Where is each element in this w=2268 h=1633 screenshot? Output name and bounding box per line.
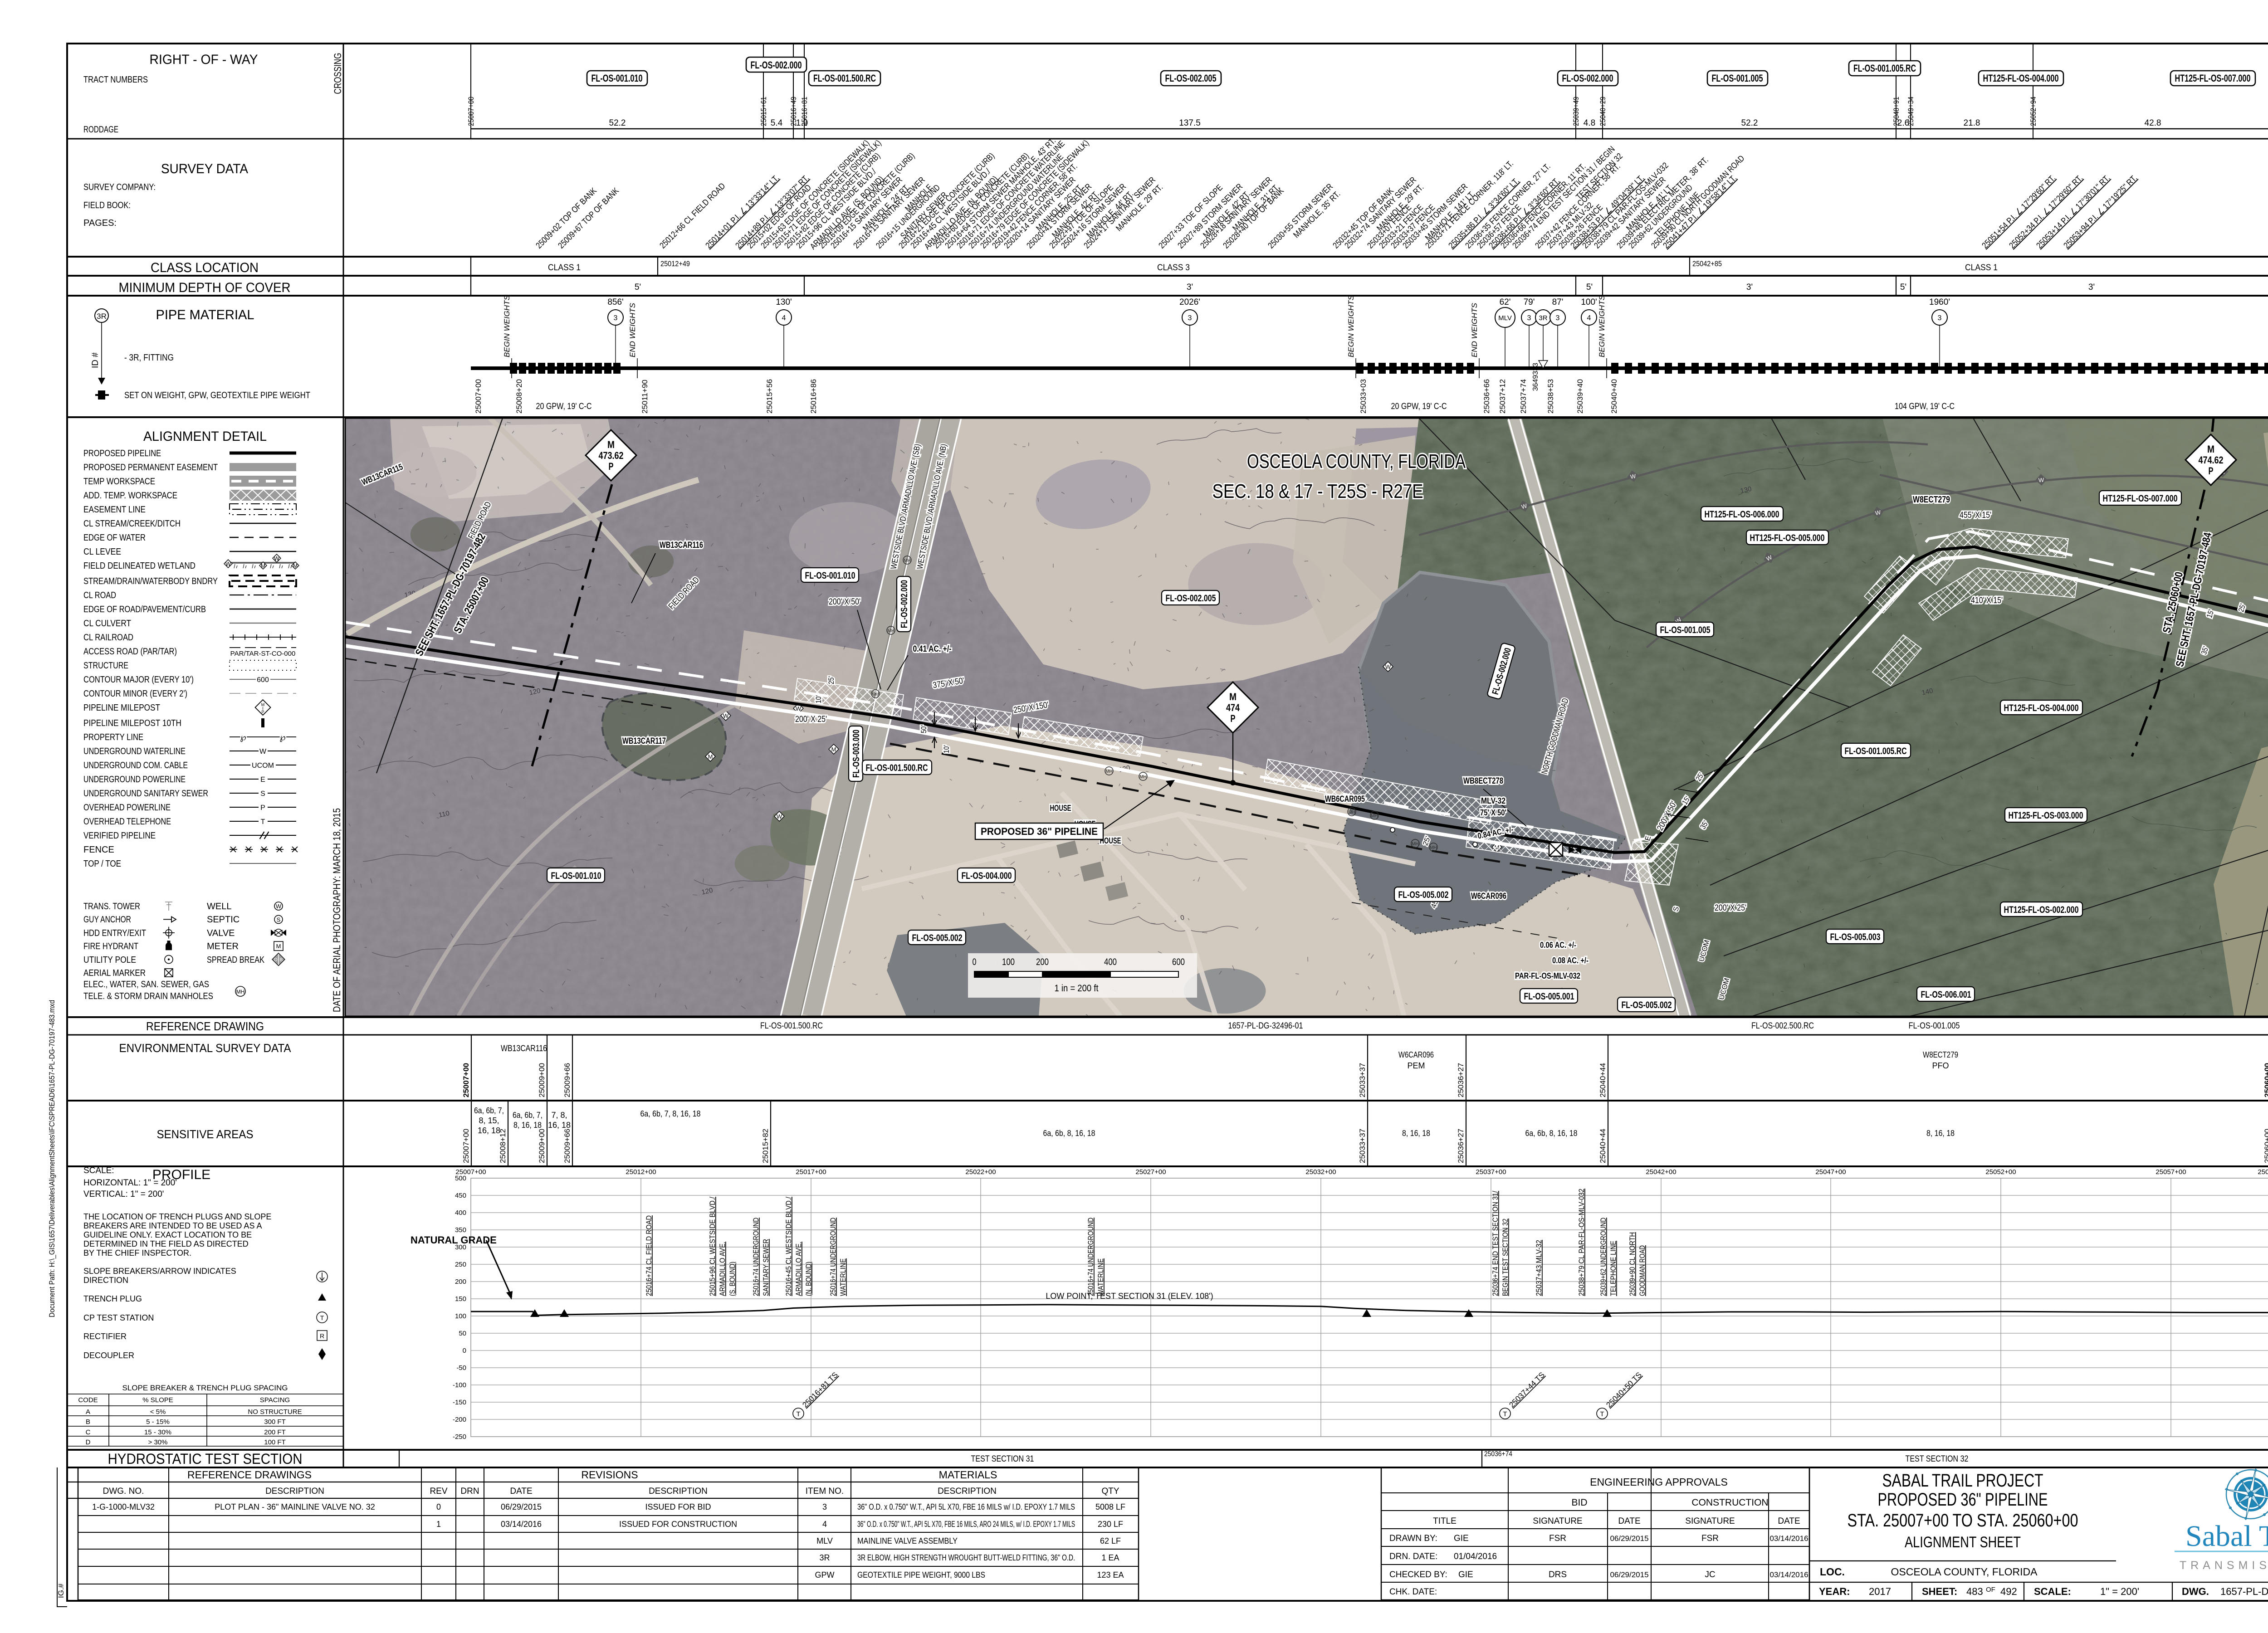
- svg-text:MH: MH: [1430, 845, 1437, 850]
- svg-text:ENGINEERING APPROVALS: ENGINEERING APPROVALS: [1590, 1476, 1728, 1488]
- svg-text:3R: 3R: [819, 1553, 830, 1562]
- svg-text:GOODMAN ROAD: GOODMAN ROAD: [1638, 1245, 1647, 1296]
- svg-text:WATERLINE: WATERLINE: [839, 1258, 847, 1296]
- svg-text:(N. BOUND): (N. BOUND): [804, 1262, 813, 1296]
- svg-text:1960': 1960': [1929, 297, 1950, 307]
- svg-text:1: 1: [436, 1520, 441, 1529]
- svg-text:T: T: [796, 1410, 800, 1418]
- svg-text:ENVIRONMENTAL SURVEY DATA: ENVIRONMENTAL SURVEY DATA: [119, 1041, 292, 1055]
- svg-text:STA. 25007+00 TO STA. 25060+00: STA. 25007+00 TO STA. 25060+00: [1848, 1511, 2078, 1531]
- svg-text:6a, 6b, 8, 16, 18: 6a, 6b, 8, 16, 18: [1525, 1129, 1578, 1138]
- svg-text:25038+53: 25038+53: [1546, 379, 1555, 414]
- svg-text:CL LEVEE: CL LEVEE: [83, 547, 121, 557]
- svg-text:FL-OS-002.005: FL-OS-002.005: [1165, 73, 1217, 84]
- svg-text:M: M: [607, 439, 615, 450]
- svg-text:FL-OS-001.010: FL-OS-001.010: [591, 73, 643, 84]
- svg-text:PIPELINE MILEPOST: PIPELINE MILEPOST: [83, 703, 160, 713]
- svg-text:M: M: [1229, 691, 1237, 702]
- svg-text:25052+94: 25052+94: [2029, 97, 2038, 126]
- svg-text:230 LF: 230 LF: [1098, 1520, 1123, 1529]
- svg-text:TELEPHONE LINE: TELEPHONE LINE: [1609, 1241, 1618, 1296]
- svg-text:PEM: PEM: [1407, 1061, 1425, 1070]
- svg-text:5 - 15%: 5 - 15%: [146, 1418, 170, 1426]
- svg-text:-100: -100: [453, 1381, 466, 1389]
- svg-text:SLOPE BREAKERS/ARROW INDICATES: SLOPE BREAKERS/ARROW INDICATES: [83, 1267, 236, 1276]
- svg-text:M: M: [261, 563, 265, 569]
- svg-text:EASEMENT LINE: EASEMENT LINE: [83, 505, 146, 515]
- svg-text:DRN: DRN: [460, 1487, 479, 1496]
- svg-text:25007+00: 25007+00: [462, 1129, 470, 1163]
- svg-text:A: A: [86, 1408, 90, 1416]
- svg-text:(S. BOUND): (S. BOUND): [728, 1262, 737, 1296]
- svg-text:20 GPW, 19' C-C: 20 GPW, 19' C-C: [536, 402, 592, 411]
- svg-text:2026': 2026': [1179, 297, 1200, 307]
- svg-text:DRN. DATE:: DRN. DATE:: [1389, 1552, 1437, 1561]
- svg-text:6a, 6b, 7,: 6a, 6b, 7,: [513, 1111, 543, 1120]
- svg-text:25036+74 END TEST SECTION 31/: 25036+74 END TEST SECTION 31/: [1491, 1191, 1500, 1296]
- svg-text:ISSUED FOR BID: ISSUED FOR BID: [645, 1502, 711, 1511]
- svg-text:CHECKED BY:: CHECKED BY:: [1389, 1570, 1447, 1579]
- svg-text:MH: MH: [236, 989, 245, 995]
- svg-text:-200: -200: [453, 1416, 466, 1423]
- svg-text:VALVE: VALVE: [207, 928, 235, 938]
- svg-text:2017: 2017: [1869, 1586, 1891, 1597]
- svg-text:MH: MH: [872, 692, 879, 697]
- svg-text:600: 600: [257, 676, 269, 684]
- svg-text:T: T: [1600, 1410, 1604, 1418]
- svg-text:1657-PL-DG-32496-01: 1657-PL-DG-32496-01: [1228, 1021, 1303, 1031]
- svg-text:0: 0: [463, 1347, 466, 1355]
- svg-text:GPW: GPW: [815, 1570, 835, 1579]
- svg-text:NO STRUCTURE: NO STRUCTURE: [248, 1408, 302, 1416]
- svg-text:6a, 6b, 7,: 6a, 6b, 7,: [474, 1106, 504, 1115]
- svg-text:R: R: [320, 1332, 324, 1340]
- svg-text:IG.#: IG.#: [57, 1583, 65, 1598]
- svg-text:25016+74 UNDERGROUND: 25016+74 UNDERGROUND: [1086, 1218, 1095, 1296]
- svg-text:DATE: DATE: [1618, 1516, 1640, 1526]
- svg-text:10': 10': [942, 745, 951, 753]
- svg-text:6a, 6b, 8, 16, 18: 6a, 6b, 8, 16, 18: [1043, 1129, 1095, 1138]
- svg-text:100 FT: 100 FT: [264, 1438, 286, 1446]
- svg-text:FL-OS-006.001: FL-OS-006.001: [1921, 990, 1971, 1000]
- svg-text:1.9: 1.9: [796, 118, 808, 128]
- svg-text:HT125-FL-OS-005.000: HT125-FL-OS-005.000: [1750, 533, 1825, 543]
- svg-text:OSCEOLA COUNTY, FLORIDA: OSCEOLA COUNTY, FLORIDA: [1247, 450, 1466, 473]
- svg-text:75' X 50': 75' X 50': [1480, 808, 1506, 817]
- svg-text:GUIDELINE ONLY. EXACT LOCATIO: GUIDELINE ONLY. EXACT LOCATION TO BE: [83, 1230, 252, 1239]
- svg-text:10': 10': [814, 695, 823, 703]
- svg-text:FL-OS-005.002: FL-OS-005.002: [1622, 1000, 1672, 1010]
- svg-text:PFO: PFO: [1932, 1061, 1949, 1070]
- svg-text:CLASS 1: CLASS 1: [548, 263, 581, 273]
- svg-text:HT125-FL-OS-004.000: HT125-FL-OS-004.000: [2004, 703, 2079, 713]
- svg-text:25015+82: 25015+82: [761, 1129, 770, 1163]
- svg-text:ARMADILLO AVE.: ARMADILLO AVE.: [794, 1242, 803, 1296]
- svg-text:25011+90: 25011+90: [640, 380, 649, 414]
- svg-text:03/14/2016: 03/14/2016: [501, 1520, 542, 1529]
- svg-text:25039+49: 25039+49: [1572, 97, 1580, 126]
- svg-text:TEST SECTION 32: TEST SECTION 32: [1906, 1454, 1969, 1464]
- svg-text:W: W: [1385, 663, 1391, 670]
- svg-text:200' X 50': 200' X 50': [829, 597, 860, 607]
- svg-text:DRS: DRS: [1549, 1570, 1567, 1579]
- svg-text:130': 130': [776, 297, 792, 307]
- svg-text:END WEIGHTS: END WEIGHTS: [1470, 302, 1479, 357]
- svg-text:0.06 AC. +/-: 0.06 AC. +/-: [1540, 941, 1576, 950]
- svg-text:25015+56: 25015+56: [765, 379, 774, 414]
- svg-text:FL-OS-005.002: FL-OS-005.002: [1398, 890, 1449, 900]
- svg-text:W8ECT279: W8ECT279: [1913, 495, 1950, 505]
- svg-text:3649333: 3649333: [1532, 363, 1540, 391]
- svg-text:25012+00: 25012+00: [626, 1168, 656, 1176]
- svg-text:METER: METER: [207, 941, 239, 951]
- svg-text:474.62: 474.62: [2199, 454, 2224, 466]
- svg-text:FL-OS-001.005: FL-OS-001.005: [1660, 625, 1711, 635]
- svg-text:1 EA: 1 EA: [1101, 1553, 1119, 1562]
- svg-text:UNDERGROUND WATERLINE: UNDERGROUND WATERLINE: [83, 746, 186, 756]
- svg-text:℘: ℘: [279, 733, 285, 742]
- svg-text:REFERENCE DRAWING: REFERENCE DRAWING: [146, 1019, 264, 1033]
- svg-text:W6CAR096: W6CAR096: [1398, 1050, 1434, 1059]
- svg-text:HT125-FL-OS-004.000: HT125-FL-OS-004.000: [1983, 73, 2059, 84]
- svg-text:BEGIN WEIGHTS: BEGIN WEIGHTS: [503, 295, 511, 357]
- svg-text:SIGNATURE: SIGNATURE: [1685, 1516, 1735, 1526]
- svg-text:ELEC., WATER, SAN. SEWER, GAS: ELEC., WATER, SAN. SEWER, GAS: [83, 980, 209, 990]
- svg-text:FL-OS-001.005: FL-OS-001.005: [1909, 1021, 1960, 1031]
- svg-text:UTILITY POLE: UTILITY POLE: [83, 955, 136, 965]
- svg-text:50': 50': [919, 725, 928, 733]
- svg-text:CROSSING: CROSSING: [332, 53, 343, 94]
- svg-text:TRENCH PLUG: TRENCH PLUG: [83, 1294, 142, 1303]
- svg-text:25009+00: 25009+00: [538, 1129, 546, 1163]
- svg-text:06/29/2015: 06/29/2015: [1610, 1534, 1648, 1543]
- svg-text:CLASS 3: CLASS 3: [1157, 263, 1190, 273]
- svg-text:CP TEST STATION: CP TEST STATION: [83, 1313, 154, 1322]
- svg-text:25032+00: 25032+00: [1305, 1168, 1336, 1176]
- svg-text:3R ELBOW, HIGH STRENGTH WROUGH: 3R ELBOW, HIGH STRENGTH WROUGHT BUTT-WEL…: [857, 1553, 1075, 1562]
- svg-text:62 LF: 62 LF: [1100, 1536, 1121, 1545]
- svg-text:OVERHEAD TELEPHONE: OVERHEAD TELEPHONE: [83, 817, 171, 827]
- svg-text:25037+43 MLV-32: 25037+43 MLV-32: [1535, 1240, 1543, 1296]
- svg-text:200: 200: [455, 1278, 466, 1286]
- svg-text:M: M: [2207, 444, 2214, 455]
- svg-text:℘: ℘: [240, 733, 246, 742]
- svg-text:79': 79': [1524, 297, 1535, 307]
- svg-text:SABAL TRAIL PROJECT: SABAL TRAIL PROJECT: [1882, 1471, 2043, 1491]
- svg-text:3R: 3R: [1539, 314, 1547, 322]
- svg-text:MLV: MLV: [816, 1536, 833, 1545]
- svg-text:25039+90 CL NORTH: 25039+90 CL NORTH: [1628, 1232, 1637, 1296]
- svg-text:SIGNATURE: SIGNATURE: [1533, 1516, 1582, 1526]
- svg-text:ALIGNMENT SHEET: ALIGNMENT SHEET: [1905, 1534, 2021, 1551]
- svg-text:REVISIONS: REVISIONS: [581, 1469, 638, 1481]
- svg-text:MATERIALS: MATERIALS: [939, 1469, 997, 1481]
- svg-text:C: C: [86, 1428, 91, 1436]
- svg-text:25057+00: 25057+00: [2156, 1168, 2186, 1176]
- svg-text:50: 50: [459, 1330, 466, 1337]
- svg-text:8, 15,: 8, 15,: [479, 1116, 499, 1125]
- svg-text:25060+00: 25060+00: [2263, 1129, 2268, 1163]
- svg-text:TRACT NUMBERS: TRACT NUMBERS: [83, 75, 148, 85]
- svg-text:25008+20: 25008+20: [515, 379, 523, 414]
- svg-text:RODDAGE: RODDAGE: [83, 125, 118, 135]
- svg-text:8, 16, 18: 8, 16, 18: [1926, 1129, 1955, 1138]
- svg-text:T: T: [320, 1314, 324, 1321]
- svg-text:WB8ECT278: WB8ECT278: [1463, 776, 1503, 786]
- svg-text:15 - 30%: 15 - 30%: [144, 1428, 171, 1436]
- svg-text:CONTOUR MAJOR (EVERY 10'): CONTOUR MAJOR (EVERY 10'): [83, 675, 194, 685]
- svg-text:25036+27: 25036+27: [1457, 1063, 1465, 1097]
- svg-text:FENCE: FENCE: [83, 845, 114, 855]
- svg-text:25040+44: 25040+44: [1598, 1063, 1607, 1097]
- svg-text:- 3R, FITTING: - 3R, FITTING: [124, 353, 174, 363]
- svg-text:25037+00: 25037+00: [1476, 1168, 1506, 1176]
- svg-text:FL-OS-005.001: FL-OS-005.001: [1524, 991, 1574, 1002]
- svg-text:200 FT: 200 FT: [264, 1428, 286, 1436]
- svg-text:3R: 3R: [97, 312, 107, 321]
- svg-text:25015+61: 25015+61: [759, 97, 768, 126]
- svg-text:HYDROSTATIC TEST SECTION: HYDROSTATIC TEST SECTION: [108, 1451, 303, 1467]
- svg-text:MH: MH: [1348, 810, 1355, 815]
- svg-text:25016+74 UNDERGROUND: 25016+74 UNDERGROUND: [829, 1218, 837, 1296]
- svg-text:2.6: 2.6: [1897, 118, 1909, 128]
- svg-text:MH: MH: [887, 629, 894, 634]
- svg-text:36" O.D. x 0.750" W.T., API 5L: 36" O.D. x 0.750" W.T., API 5L X70, FBE …: [857, 1520, 1075, 1529]
- svg-text:ITEM NO.: ITEM NO.: [806, 1487, 844, 1496]
- svg-text:EDGE OF WATER: EDGE OF WATER: [83, 533, 146, 543]
- svg-text:VERIFIED PIPELINE: VERIFIED PIPELINE: [83, 831, 156, 841]
- svg-text:FSR: FSR: [1701, 1534, 1719, 1543]
- svg-text:492: 492: [2000, 1586, 2017, 1597]
- svg-text:FL-OS-002.000: FL-OS-002.000: [751, 59, 802, 71]
- svg-text:3': 3': [1746, 283, 1753, 292]
- svg-text:FL-OS-001.005: FL-OS-001.005: [1712, 73, 1763, 84]
- svg-text:25040+40: 25040+40: [1610, 379, 1618, 414]
- svg-text:LOW POINT, TEST SECTION 31 (EL: LOW POINT, TEST SECTION 31 (ELEV. 108'): [1046, 1292, 1213, 1301]
- svg-text:CL RAILROAD: CL RAILROAD: [83, 633, 133, 643]
- svg-text:200: 200: [1036, 957, 1049, 967]
- svg-text:16, 18: 16, 18: [478, 1126, 500, 1135]
- svg-text:FL-OS-003.000: FL-OS-003.000: [851, 730, 861, 778]
- svg-text:P: P: [2209, 465, 2214, 477]
- svg-text:JC: JC: [1705, 1570, 1715, 1579]
- svg-text:3: 3: [822, 1502, 827, 1511]
- svg-text:VERTICAL: 1" = 200': VERTICAL: 1" = 200': [83, 1189, 164, 1199]
- svg-text:CHK. DATE:: CHK. DATE:: [1389, 1587, 1437, 1597]
- svg-text:PROPOSED 36" PIPELINE: PROPOSED 36" PIPELINE: [1878, 1490, 2048, 1510]
- svg-text:D: D: [86, 1438, 91, 1446]
- svg-text:03/14/2016: 03/14/2016: [1769, 1570, 1808, 1579]
- svg-text:4: 4: [1587, 314, 1591, 322]
- svg-text:FL-OS-001.005.RC: FL-OS-001.005.RC: [1845, 746, 1907, 756]
- svg-text:FL-OS-001.005.RC: FL-OS-001.005.RC: [1853, 63, 1916, 74]
- svg-text:T: T: [1503, 1410, 1507, 1418]
- svg-text:5008 LF: 5008 LF: [1095, 1502, 1125, 1511]
- svg-text:200' X 25': 200' X 25': [795, 715, 827, 724]
- svg-text:25036+74: 25036+74: [1484, 1450, 1512, 1458]
- svg-text:GEOTEXTILE PIPE WEIGHT, 9000 L: GEOTEXTILE PIPE WEIGHT, 9000 LBS: [857, 1570, 985, 1579]
- svg-text:DWG.: DWG.: [2182, 1586, 2209, 1597]
- svg-text:BEGIN WEIGHTS: BEGIN WEIGHTS: [1347, 295, 1355, 357]
- svg-text:-50: -50: [456, 1364, 466, 1372]
- svg-text:200' X 25': 200' X 25': [1715, 903, 1746, 913]
- svg-text:473.62: 473.62: [599, 450, 624, 461]
- svg-text:25007+00: 25007+00: [455, 1168, 486, 1176]
- svg-text:> 30%: > 30%: [148, 1438, 168, 1446]
- svg-text:FL-OS-001.500.RC: FL-OS-001.500.RC: [813, 73, 876, 84]
- svg-text:M: M: [708, 753, 713, 760]
- svg-text:FIRE HYDRANT: FIRE HYDRANT: [83, 941, 138, 951]
- svg-text:SLOPE BREAKER & TRENCH PLUG SP: SLOPE BREAKER & TRENCH PLUG SPACING: [122, 1384, 288, 1392]
- svg-text:06/29/2015: 06/29/2015: [501, 1502, 542, 1511]
- svg-text:DESCRIPTION: DESCRIPTION: [938, 1487, 997, 1496]
- svg-text:25033+03: 25033+03: [1359, 379, 1368, 414]
- svg-text:HDD ENTRY/EXIT: HDD ENTRY/EXIT: [83, 928, 146, 938]
- svg-text:1 in = 200 ft: 1 in = 200 ft: [1055, 983, 1099, 994]
- svg-text:455' X 15': 455' X 15': [1960, 511, 1991, 520]
- svg-text:UNDERGROUND POWERLINE: UNDERGROUND POWERLINE: [83, 775, 186, 785]
- svg-text:PIPE MATERIAL: PIPE MATERIAL: [156, 307, 254, 322]
- svg-text:SEPTIC: SEPTIC: [207, 915, 240, 925]
- svg-text:FL-OS-004.000: FL-OS-004.000: [962, 871, 1012, 881]
- svg-text:W: W: [723, 712, 729, 719]
- svg-text:87': 87': [1552, 297, 1564, 307]
- svg-text:20 GPW, 19' C-C: 20 GPW, 19' C-C: [1391, 402, 1447, 411]
- svg-text:M: M: [831, 746, 836, 753]
- svg-text:QTY: QTY: [1101, 1487, 1119, 1496]
- svg-text:PAR/TAR-ST-CO-000: PAR/TAR-ST-CO-000: [230, 650, 296, 658]
- svg-text:OF: OF: [1986, 1586, 1995, 1594]
- svg-text:5.4: 5.4: [771, 118, 783, 128]
- svg-text:DECOUPLER: DECOUPLER: [83, 1351, 134, 1360]
- svg-text:25047+00: 25047+00: [1815, 1168, 1846, 1176]
- svg-text:DESCRIPTION: DESCRIPTION: [649, 1487, 708, 1496]
- svg-text:8, 16, 18: 8, 16, 18: [1402, 1129, 1430, 1138]
- svg-text:TRANSMISSION: TRANSMISSION: [2180, 1559, 2268, 1572]
- svg-text:25016+74 CL FIELD ROAD: 25016+74 CL FIELD ROAD: [645, 1215, 653, 1296]
- svg-text:B: B: [280, 958, 283, 963]
- svg-text:100: 100: [1002, 957, 1015, 967]
- svg-text:25016+74 UNDERGROUND: 25016+74 UNDERGROUND: [752, 1218, 760, 1296]
- svg-text:SURVEY COMPANY:: SURVEY COMPANY:: [83, 182, 156, 192]
- svg-text:DATE OF AERIAL PHOTOGRAPHY: MA: DATE OF AERIAL PHOTOGRAPHY: MARCH 18, 20…: [331, 808, 342, 1012]
- svg-text:DIRECTION: DIRECTION: [83, 1276, 128, 1285]
- svg-text:350: 350: [455, 1226, 466, 1234]
- svg-text:% SLOPE: % SLOPE: [142, 1396, 173, 1404]
- svg-text:HORIZONTAL: 1" = 200': HORIZONTAL: 1" = 200': [83, 1178, 177, 1188]
- svg-text:GIE: GIE: [1458, 1570, 1473, 1579]
- svg-text:REV: REV: [430, 1487, 447, 1496]
- svg-text:HT125-FL-OS-002.000: HT125-FL-OS-002.000: [2004, 905, 2079, 915]
- svg-text:01/04/2016: 01/04/2016: [1454, 1552, 1497, 1561]
- svg-text:25007+00: 25007+00: [462, 1063, 470, 1097]
- svg-text:474: 474: [1226, 702, 1240, 713]
- svg-text:DESCRIPTION: DESCRIPTION: [265, 1487, 324, 1496]
- svg-text:ADD. TEMP. WORKSPACE: ADD. TEMP. WORKSPACE: [83, 491, 177, 501]
- svg-text:LOC.: LOC.: [1820, 1566, 1845, 1578]
- svg-text:P: P: [609, 461, 614, 472]
- svg-text:FL-OS-001.500.RC: FL-OS-001.500.RC: [866, 763, 928, 773]
- svg-text:D: D: [274, 958, 277, 963]
- svg-text:25060+00: 25060+00: [2258, 1168, 2268, 1176]
- svg-text:FSR: FSR: [1549, 1534, 1566, 1543]
- svg-text:WATERLINE: WATERLINE: [1096, 1258, 1105, 1296]
- svg-text:25036+66: 25036+66: [1482, 379, 1491, 414]
- svg-text:W8ECT279: W8ECT279: [1923, 1050, 1958, 1059]
- svg-text:4.8: 4.8: [1584, 118, 1595, 128]
- svg-text:52.2: 52.2: [1741, 118, 1758, 128]
- svg-text:137.5: 137.5: [1179, 118, 1201, 128]
- svg-text:HOUSE: HOUSE: [1050, 804, 1071, 813]
- svg-text:25036+27: 25036+27: [1457, 1129, 1465, 1163]
- svg-text:3: 3: [1188, 314, 1192, 322]
- svg-text:03/14/2016: 03/14/2016: [1769, 1534, 1808, 1543]
- svg-text:MLV: MLV: [1498, 314, 1512, 322]
- svg-text:-150: -150: [453, 1399, 466, 1406]
- svg-text:1-G-1000-MLV32: 1-G-1000-MLV32: [92, 1502, 155, 1511]
- svg-text:WB13CAR116: WB13CAR116: [660, 541, 703, 550]
- svg-text:TRANS. TOWER: TRANS. TOWER: [83, 902, 140, 912]
- svg-text:100: 100: [455, 1312, 466, 1320]
- svg-text:5': 5': [635, 283, 641, 292]
- svg-text:CODE: CODE: [78, 1396, 98, 1404]
- svg-text:M: M: [276, 943, 281, 950]
- svg-text:8, 16, 18: 8, 16, 18: [513, 1121, 542, 1130]
- svg-text:450: 450: [455, 1192, 466, 1199]
- svg-text:250: 250: [455, 1261, 466, 1268]
- svg-text:DRAWN BY:: DRAWN BY:: [1389, 1534, 1437, 1543]
- svg-text:OSCEOLA COUNTY, FLORIDA: OSCEOLA COUNTY, FLORIDA: [1891, 1566, 2038, 1578]
- svg-text:PAR-FL-OS-MLV-032: PAR-FL-OS-MLV-032: [1515, 971, 1580, 980]
- svg-text:62': 62': [1500, 297, 1511, 307]
- svg-text:SENSITIVE AREAS: SENSITIVE AREAS: [157, 1127, 254, 1141]
- svg-text:400: 400: [1104, 957, 1117, 967]
- svg-text:FL-OS-002.000: FL-OS-002.000: [1562, 73, 1613, 84]
- svg-text:SPACING: SPACING: [260, 1396, 290, 1404]
- svg-text:BY THE CHIEF INSPECTOR.: BY THE CHIEF INSPECTOR.: [83, 1248, 191, 1258]
- svg-text:SET ON WEIGHT, GPW, GEOTEXTILE: SET ON WEIGHT, GPW, GEOTEXTILE PIPE WEIG…: [124, 390, 310, 400]
- svg-text:CL CULVERT: CL CULVERT: [83, 619, 131, 629]
- svg-text:21.8: 21.8: [1964, 118, 1980, 128]
- svg-text:3: 3: [1556, 314, 1560, 322]
- svg-text:HT125-FL-OS-007.000: HT125-FL-OS-007.000: [2103, 493, 2178, 504]
- svg-text:600: 600: [1172, 957, 1185, 967]
- svg-text:25': 25': [827, 676, 836, 684]
- svg-text:W: W: [276, 903, 282, 910]
- svg-text:DATE: DATE: [1778, 1516, 1800, 1526]
- svg-text:ID #: ID #: [91, 352, 100, 368]
- svg-text:3: 3: [1938, 314, 1942, 322]
- svg-text:25040+29: 25040+29: [1598, 97, 1607, 126]
- svg-text:-250: -250: [453, 1433, 466, 1441]
- svg-text:END WEIGHTS: END WEIGHTS: [628, 302, 637, 357]
- svg-text:EDGE OF ROAD/PAVEMENT/CURB: EDGE OF ROAD/PAVEMENT/CURB: [83, 604, 206, 614]
- svg-text:TELE. & STORM DRAIN MANHOLES: TELE. & STORM DRAIN MANHOLES: [83, 991, 213, 1001]
- svg-text:UNDERGROUND COM. CABLE: UNDERGROUND COM. CABLE: [83, 760, 188, 770]
- svg-text:25042+85: 25042+85: [1692, 259, 1722, 268]
- svg-text:W: W: [259, 748, 267, 756]
- svg-text:DATE: DATE: [510, 1487, 532, 1496]
- svg-text:MAINLINE VALVE ASSEMBLY: MAINLINE VALVE ASSEMBLY: [857, 1536, 958, 1545]
- svg-text:SHEET:: SHEET:: [1922, 1586, 1957, 1597]
- svg-text:25038+79 CL PAR-FL-OS-MLV-032: 25038+79 CL PAR-FL-OS-MLV-032: [1577, 1189, 1586, 1296]
- svg-text:WELL: WELL: [207, 902, 231, 912]
- svg-text:FL-OS-001.500.RC: FL-OS-001.500.RC: [760, 1021, 823, 1031]
- svg-text:FL-OS-002.005: FL-OS-002.005: [1166, 593, 1216, 604]
- svg-text:< 5%: < 5%: [150, 1408, 166, 1416]
- svg-text:GIE: GIE: [1454, 1534, 1469, 1543]
- svg-text:25012+49: 25012+49: [660, 259, 690, 268]
